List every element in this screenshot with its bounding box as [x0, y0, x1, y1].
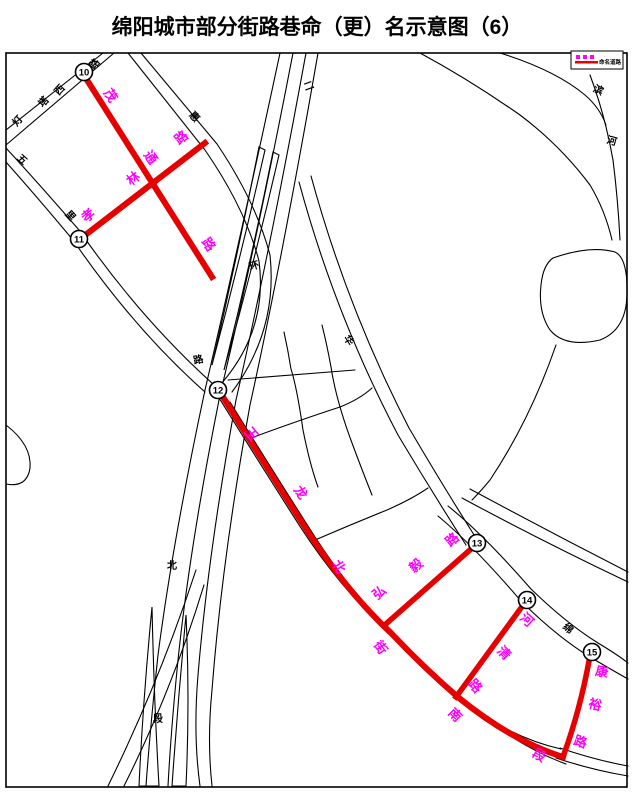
second-ring-road-north-label-char: 北	[167, 559, 177, 572]
junction-number: 13	[472, 538, 483, 549]
street-map-canvas: 绵阳城市部分街路巷命（更）名示意图（6）	[0, 0, 635, 795]
junction-marker-11: 11	[71, 231, 88, 248]
map-document: 绵阳城市部分街路巷命（更）名示意图（6）	[0, 0, 635, 795]
map-border	[6, 53, 627, 787]
junction-number: 15	[587, 647, 598, 658]
legend-magenta-swatch-icon	[583, 55, 587, 59]
legend-magenta-swatch-icon	[576, 55, 580, 59]
junction-marker-13: 13	[469, 535, 486, 552]
junction-marker-10: 10	[76, 64, 93, 81]
junction-marker-15: 15	[584, 644, 601, 661]
junction-number: 14	[522, 595, 533, 606]
junction-number: 10	[79, 67, 90, 78]
junction-marker-12: 12	[210, 382, 227, 399]
page-title: 绵阳城市部分街路巷命（更）名示意图（6）	[112, 15, 523, 39]
second-ring-road-north-label-char: 段	[153, 712, 163, 725]
junction-number: 12	[213, 385, 224, 396]
legend: 命名道路	[571, 51, 623, 69]
legend-red-line-icon	[575, 61, 598, 64]
junction-marker-14: 14	[519, 592, 536, 609]
legend-label: 命名道路	[598, 58, 622, 66]
junction-number: 11	[74, 234, 85, 245]
legend-magenta-swatch-icon	[590, 55, 594, 59]
